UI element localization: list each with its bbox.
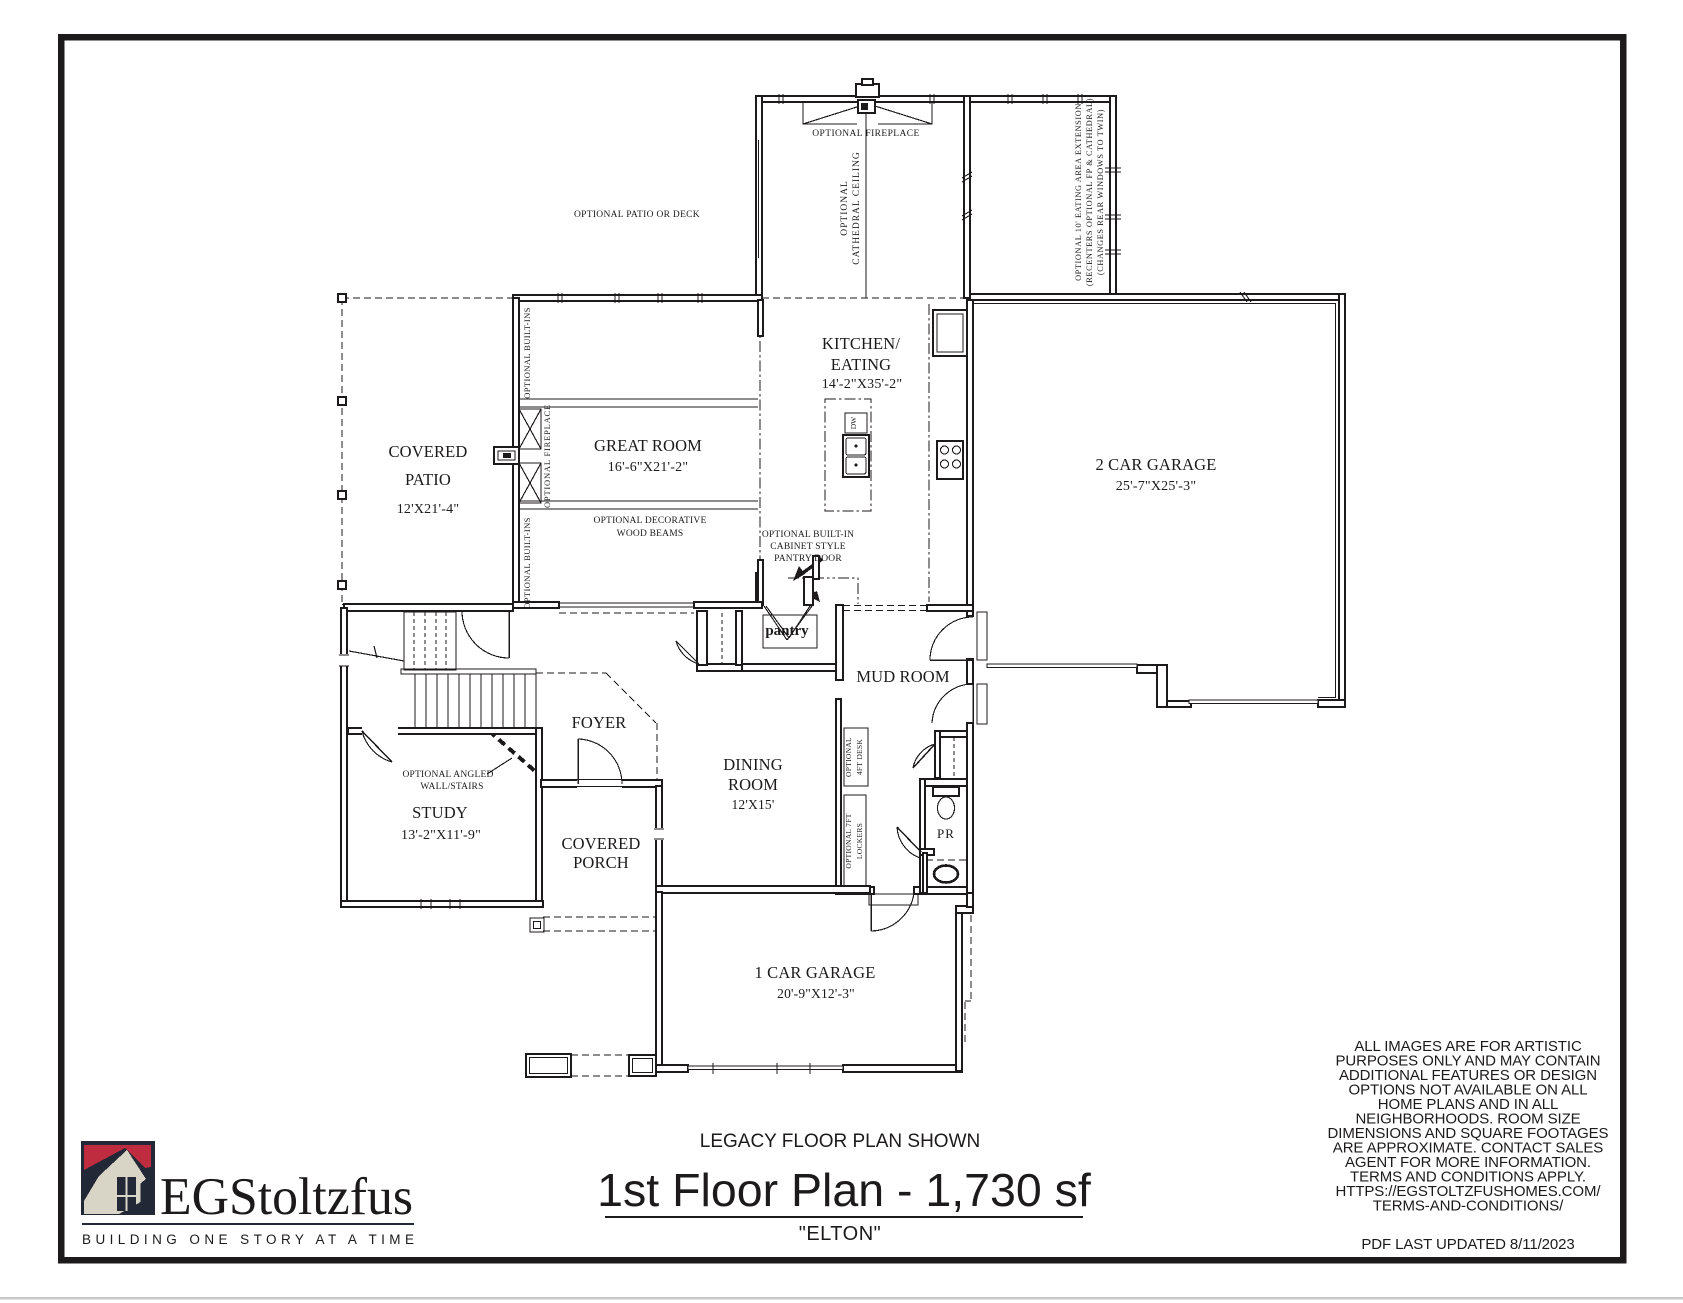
svg-text:EATING: EATING — [831, 355, 891, 374]
svg-text:EGStoltzfus: EGStoltzfus — [160, 1168, 413, 1226]
svg-text:OPTIONAL ANGLED: OPTIONAL ANGLED — [402, 770, 493, 780]
svg-text:OPTIONAL: OPTIONAL — [840, 180, 850, 236]
svg-text:25'-7"X25'-3": 25'-7"X25'-3" — [1116, 479, 1197, 494]
svg-text:DINING: DINING — [723, 755, 783, 774]
svg-text:12'X21'-4": 12'X21'-4" — [397, 502, 460, 517]
svg-text:13'-2"X11'-9": 13'-2"X11'-9" — [401, 828, 481, 843]
svg-text:LEGACY FLOOR PLAN SHOWN: LEGACY FLOOR PLAN SHOWN — [700, 1131, 981, 1152]
svg-text:LOCKERS: LOCKERS — [855, 823, 864, 859]
svg-text:16'-6"X21'-2": 16'-6"X21'-2" — [608, 460, 689, 475]
svg-text:pantry: pantry — [765, 623, 809, 639]
svg-text:KITCHEN/: KITCHEN/ — [822, 334, 900, 353]
svg-text:GREAT ROOM: GREAT ROOM — [594, 436, 702, 455]
svg-text:"ELTON": "ELTON" — [799, 1223, 882, 1245]
svg-text:PR: PR — [937, 826, 955, 841]
svg-text:4FT DESK: 4FT DESK — [855, 739, 864, 776]
svg-text:(RECENTERS OPTIONAL FP & CATHE: (RECENTERS OPTIONAL FP & CATHEDRAL) — [1085, 98, 1094, 286]
svg-text:WALL/STAIRS: WALL/STAIRS — [420, 782, 483, 792]
svg-text:OPTIONAL BUILT-IN: OPTIONAL BUILT-IN — [762, 530, 854, 540]
svg-text:CATHEDRAL CEILING: CATHEDRAL CEILING — [852, 151, 862, 264]
svg-text:14'-2"X35'-2": 14'-2"X35'-2" — [822, 377, 903, 392]
svg-text:OPTIONAL 7FT: OPTIONAL 7FT — [844, 813, 853, 868]
svg-text:OPTIONAL 10' EATING AREA EXTEN: OPTIONAL 10' EATING AREA EXTENSION — [1074, 103, 1083, 281]
svg-text:OPTIONAL BUILT-INS: OPTIONAL BUILT-INS — [522, 517, 532, 609]
svg-text:STUDY: STUDY — [412, 803, 468, 822]
svg-text:12'X15': 12'X15' — [731, 797, 774, 812]
svg-text:20'-9"X12'-3": 20'-9"X12'-3" — [777, 986, 855, 1001]
svg-text:DW: DW — [849, 416, 858, 429]
svg-text:2 CAR GARAGE: 2 CAR GARAGE — [1096, 455, 1217, 474]
svg-text:WOOD BEAMS: WOOD BEAMS — [617, 529, 684, 539]
svg-text:FOYER: FOYER — [572, 713, 627, 732]
svg-text:TERMS-AND-CONDITIONS/: TERMS-AND-CONDITIONS/ — [1373, 1198, 1564, 1215]
svg-text:OPTIONAL BUILT-INS: OPTIONAL BUILT-INS — [522, 307, 532, 399]
svg-text:COVERED: COVERED — [562, 834, 641, 853]
svg-text:PANTRY DOOR: PANTRY DOOR — [774, 554, 842, 564]
svg-text:CABINET STYLE: CABINET STYLE — [770, 542, 846, 552]
svg-text:OPTIONAL PATIO OR DECK: OPTIONAL PATIO OR DECK — [574, 210, 700, 220]
svg-text:PATIO: PATIO — [405, 470, 451, 489]
svg-text:OPTIONAL FIREPLACE: OPTIONAL FIREPLACE — [812, 129, 919, 139]
svg-text:OPTIONAL DECORATIVE: OPTIONAL DECORATIVE — [594, 516, 707, 526]
svg-text:ROOM: ROOM — [728, 775, 778, 794]
svg-text:1st Floor Plan - 1,730 sf: 1st Floor Plan - 1,730 sf — [597, 1164, 1091, 1216]
svg-text:PORCH: PORCH — [573, 853, 629, 872]
svg-text:PDF LAST UPDATED 8/11/2023: PDF LAST UPDATED 8/11/2023 — [1361, 1236, 1574, 1253]
svg-text:OPTIONAL: OPTIONAL — [844, 737, 853, 777]
svg-text:1 CAR GARAGE: 1 CAR GARAGE — [755, 963, 876, 982]
svg-text:OPTIONAL FIREPLACE: OPTIONAL FIREPLACE — [542, 404, 552, 508]
svg-text:MUD ROOM: MUD ROOM — [856, 667, 950, 686]
svg-text:(CHANGES REAR WINDOWS TO TWIN): (CHANGES REAR WINDOWS TO TWIN) — [1096, 109, 1105, 275]
svg-text:COVERED: COVERED — [389, 442, 468, 461]
